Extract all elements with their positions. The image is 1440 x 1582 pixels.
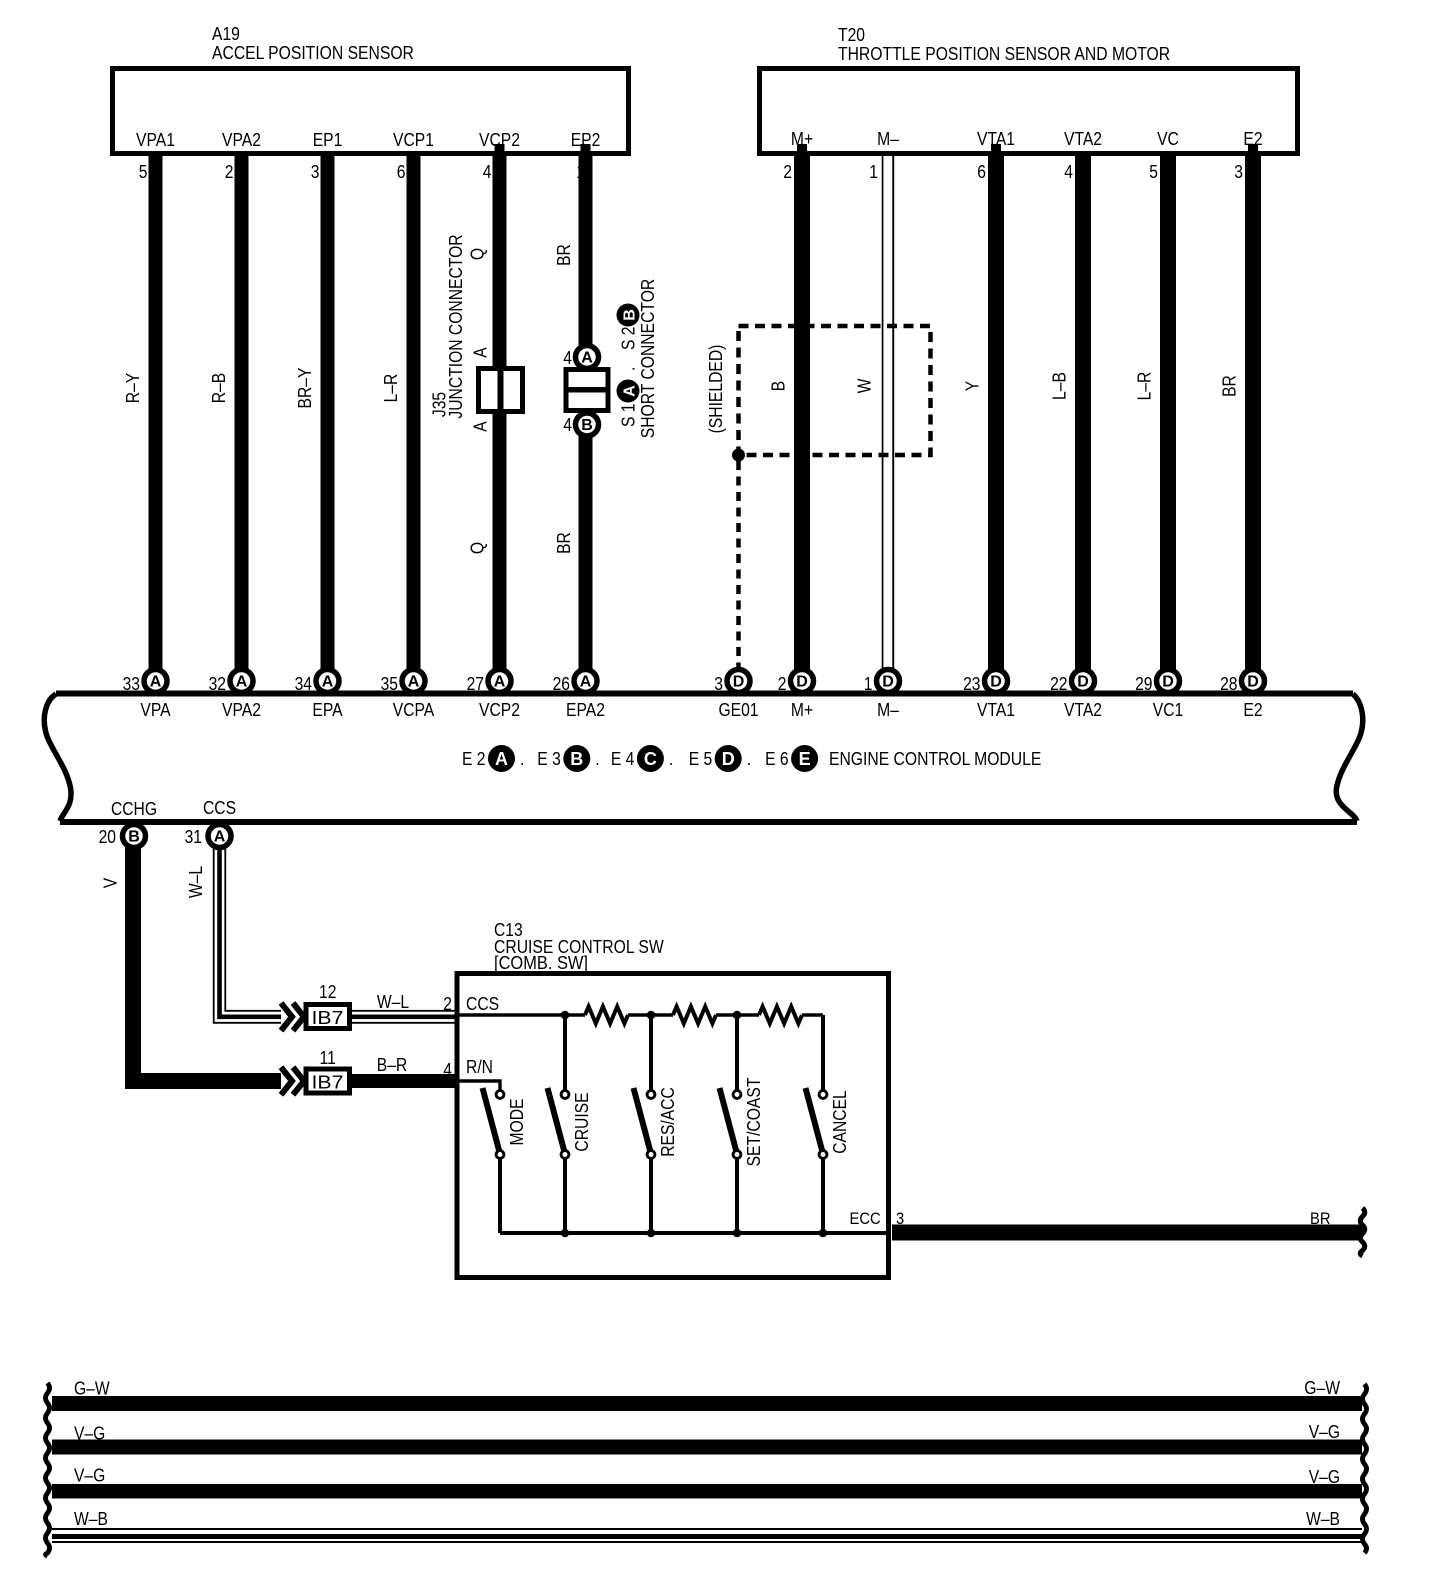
- svg-text:ENGINE CONTROL MODULE: ENGINE CONTROL MODULE: [829, 749, 1041, 769]
- svg-text:A: A: [581, 350, 593, 367]
- svg-text:35: 35: [381, 674, 398, 694]
- svg-text:D: D: [1162, 674, 1174, 691]
- svg-text:V–G: V–G: [1309, 1467, 1340, 1487]
- svg-text:A: A: [471, 347, 491, 357]
- svg-text:CCS: CCS: [203, 798, 236, 818]
- svg-text:23: 23: [963, 674, 980, 694]
- svg-text:E2: E2: [1243, 700, 1262, 720]
- svg-text:S 1: S 1: [619, 404, 639, 428]
- svg-text:26: 26: [553, 674, 570, 694]
- svg-text:IB7: IB7: [312, 1073, 344, 1093]
- svg-text:A19: A19: [212, 24, 240, 44]
- svg-text:A: A: [471, 421, 491, 431]
- svg-text:W–B: W–B: [74, 1509, 108, 1529]
- svg-text:A: A: [408, 674, 420, 691]
- svg-text:A: A: [236, 674, 248, 691]
- svg-text:SET/COAST: SET/COAST: [744, 1078, 764, 1167]
- svg-text:CCHG: CCHG: [111, 799, 157, 819]
- svg-text:31: 31: [185, 827, 202, 847]
- svg-text:V–G: V–G: [74, 1424, 105, 1444]
- svg-text:2: 2: [225, 162, 234, 182]
- svg-text:A: A: [494, 674, 506, 691]
- svg-text:VPA2: VPA2: [222, 130, 261, 150]
- svg-text:.: .: [520, 749, 524, 769]
- svg-text:29: 29: [1135, 674, 1152, 694]
- svg-text:W–B: W–B: [1306, 1509, 1340, 1529]
- svg-text:Q: Q: [468, 542, 488, 554]
- svg-text:4: 4: [443, 1060, 452, 1080]
- svg-text:1: 1: [864, 674, 873, 694]
- svg-text:E 6: E 6: [765, 749, 789, 769]
- svg-text:.: .: [619, 367, 639, 371]
- svg-text:Y: Y: [963, 381, 983, 391]
- svg-text:3: 3: [1234, 162, 1243, 182]
- svg-text:D: D: [882, 674, 894, 691]
- svg-text:4: 4: [563, 415, 572, 435]
- svg-text:V: V: [101, 878, 121, 888]
- svg-text:27: 27: [467, 674, 484, 694]
- svg-text:G–W: G–W: [1304, 1378, 1340, 1398]
- svg-text:S 2: S 2: [619, 327, 639, 351]
- svg-text:R/N: R/N: [466, 1057, 493, 1077]
- svg-text:VTA2: VTA2: [1064, 129, 1102, 149]
- svg-text:V–G: V–G: [1309, 1422, 1340, 1442]
- svg-text:B: B: [128, 829, 140, 846]
- svg-text:EP1: EP1: [313, 130, 343, 150]
- svg-text:A: A: [150, 674, 162, 691]
- svg-text:T20: T20: [838, 25, 865, 45]
- svg-text:A: A: [622, 385, 639, 397]
- svg-text:E: E: [799, 749, 811, 769]
- svg-text:GE01: GE01: [719, 700, 759, 720]
- svg-text:D: D: [796, 674, 808, 691]
- svg-text:MODE: MODE: [507, 1099, 527, 1146]
- svg-text:E 2: E 2: [462, 749, 486, 769]
- svg-text:VC1: VC1: [1153, 700, 1184, 720]
- svg-text:(SHIELDED): (SHIELDED): [706, 345, 726, 434]
- svg-text:L–R: L–R: [1135, 372, 1155, 401]
- svg-text:VPA1: VPA1: [136, 130, 175, 150]
- svg-text:E 5: E 5: [689, 749, 713, 769]
- svg-text:V–G: V–G: [74, 1466, 105, 1486]
- svg-text:VTA2: VTA2: [1064, 700, 1102, 720]
- svg-text:B: B: [622, 309, 639, 321]
- svg-text:A: A: [580, 674, 592, 691]
- svg-text:.: .: [595, 749, 599, 769]
- svg-text:ACCEL POSITION SENSOR: ACCEL POSITION SENSOR: [212, 43, 414, 63]
- svg-text:VPA2: VPA2: [222, 700, 261, 720]
- svg-text:3: 3: [714, 674, 723, 694]
- svg-text:VTA1: VTA1: [977, 700, 1015, 720]
- svg-text:Q: Q: [468, 248, 488, 260]
- svg-text:B: B: [581, 417, 593, 434]
- svg-text:VCP2: VCP2: [479, 700, 520, 720]
- svg-text:EPA: EPA: [312, 700, 342, 720]
- svg-text:BR: BR: [554, 244, 574, 266]
- svg-text:R–B: R–B: [209, 373, 229, 404]
- svg-text:VCP1: VCP1: [393, 130, 434, 150]
- svg-text:BR: BR: [554, 532, 574, 554]
- svg-text:THROTTLE POSITION SENSOR AND M: THROTTLE POSITION SENSOR AND MOTOR: [838, 44, 1170, 64]
- svg-text:M+: M+: [791, 700, 813, 720]
- svg-text:JUNCTION CONNECTOR: JUNCTION CONNECTOR: [446, 234, 466, 418]
- svg-text:33: 33: [123, 674, 140, 694]
- svg-text:CANCEL: CANCEL: [830, 1090, 850, 1154]
- svg-text:B: B: [570, 749, 583, 769]
- svg-text:3: 3: [896, 1209, 904, 1228]
- svg-text:D: D: [733, 674, 745, 691]
- svg-text:CCS: CCS: [466, 994, 499, 1014]
- svg-text:W: W: [855, 379, 875, 394]
- svg-text:W–L: W–L: [186, 866, 206, 898]
- svg-text:VC: VC: [1157, 129, 1179, 149]
- svg-text:D: D: [722, 749, 735, 769]
- svg-text:A: A: [214, 829, 226, 846]
- svg-text:1: 1: [869, 162, 878, 182]
- svg-text:32: 32: [209, 674, 226, 694]
- svg-text:BR: BR: [1220, 375, 1240, 397]
- svg-text:D: D: [990, 674, 1002, 691]
- svg-text:D: D: [1247, 674, 1259, 691]
- svg-text:L–B: L–B: [1050, 372, 1070, 400]
- svg-text:A: A: [495, 749, 508, 769]
- svg-text:C: C: [644, 749, 657, 769]
- svg-text:34: 34: [295, 674, 312, 694]
- svg-text:.: .: [747, 749, 751, 769]
- svg-text:28: 28: [1220, 674, 1237, 694]
- svg-text:2: 2: [783, 162, 792, 182]
- svg-text:11: 11: [320, 1048, 336, 1068]
- svg-text:E 4: E 4: [611, 749, 635, 769]
- svg-text:CRUISE: CRUISE: [572, 1092, 592, 1151]
- svg-text:4: 4: [563, 348, 572, 368]
- svg-text:L–R: L–R: [381, 374, 401, 403]
- svg-text:G–W: G–W: [74, 1379, 110, 1399]
- svg-text:BR–Y: BR–Y: [295, 368, 315, 409]
- svg-text:[COMB. SW]: [COMB. SW]: [494, 953, 588, 973]
- svg-text:IB7: IB7: [312, 1008, 344, 1028]
- svg-text:B: B: [769, 381, 789, 391]
- svg-text:.: .: [669, 749, 673, 769]
- svg-text:2: 2: [778, 674, 787, 694]
- svg-text:4: 4: [1064, 162, 1073, 182]
- svg-text:12: 12: [319, 982, 336, 1002]
- svg-text:VCPA: VCPA: [393, 700, 435, 720]
- svg-text:22: 22: [1050, 674, 1067, 694]
- svg-text:R–Y: R–Y: [123, 373, 143, 404]
- svg-text:W–L: W–L: [377, 992, 409, 1012]
- svg-text:6: 6: [397, 162, 406, 182]
- svg-text:E 3: E 3: [537, 749, 561, 769]
- svg-text:ECC: ECC: [850, 1209, 881, 1228]
- svg-text:2: 2: [443, 994, 452, 1014]
- svg-text:VPA: VPA: [140, 700, 170, 720]
- svg-text:B–R: B–R: [377, 1055, 408, 1075]
- svg-text:D: D: [1077, 674, 1089, 691]
- svg-text:5: 5: [139, 162, 148, 182]
- svg-text:SHORT CONNECTOR: SHORT CONNECTOR: [638, 279, 658, 439]
- svg-text:20: 20: [99, 827, 116, 847]
- svg-text:EPA2: EPA2: [566, 700, 605, 720]
- svg-text:RES/ACC: RES/ACC: [658, 1087, 678, 1157]
- svg-text:M–: M–: [877, 700, 899, 720]
- svg-text:BR: BR: [1310, 1209, 1331, 1228]
- svg-text:5: 5: [1149, 162, 1158, 182]
- svg-text:M–: M–: [877, 129, 899, 149]
- svg-text:6: 6: [977, 162, 986, 182]
- svg-text:4: 4: [483, 162, 492, 182]
- svg-text:A: A: [322, 674, 334, 691]
- svg-text:3: 3: [311, 162, 320, 182]
